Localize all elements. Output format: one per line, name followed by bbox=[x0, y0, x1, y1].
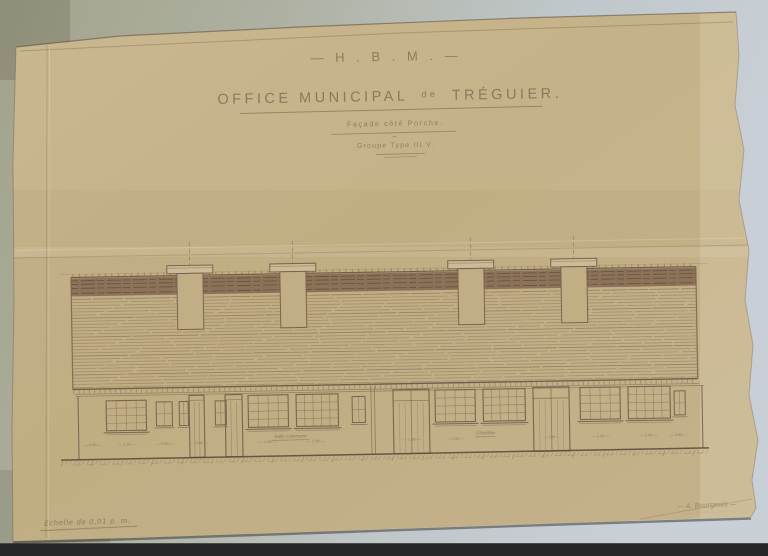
subtitle-group: Groupe Type III.V. bbox=[357, 142, 435, 150]
series-title: — H . B . M . — bbox=[310, 48, 461, 66]
chimney-cap bbox=[551, 258, 597, 267]
main-title-left: OFFICE MUNICIPAL bbox=[217, 89, 408, 108]
chimney-cap bbox=[448, 260, 494, 269]
main-title-de: de bbox=[421, 89, 438, 99]
room-label-text: Chambre bbox=[476, 430, 495, 435]
chimney-cap bbox=[167, 265, 213, 274]
chimney-shaft bbox=[280, 271, 307, 327]
subtitle-facade: Façade côté Porche. bbox=[347, 118, 444, 129]
main-title-right: TRÉGUIER. bbox=[452, 85, 563, 104]
chimney-cap bbox=[270, 263, 316, 272]
chimney-shaft bbox=[177, 273, 204, 329]
dimension-text: — 0.60 — bbox=[670, 432, 688, 437]
dimension-text: — 1.50 — bbox=[259, 439, 277, 444]
scene-svg: — H . B . M . — OFFICE MUNICIPAL de TRÉG… bbox=[0, 0, 768, 556]
dimension-text: — 1.50 — bbox=[640, 432, 658, 437]
dimension-text: — 0.45 — bbox=[84, 442, 102, 447]
chimney-shaft bbox=[561, 266, 588, 322]
dimension-text: — 1.80 — bbox=[543, 434, 561, 439]
dimension-text: — 0.80 — bbox=[156, 441, 174, 446]
small-window bbox=[177, 401, 190, 427]
dimension-text: — 1.30 — bbox=[118, 441, 136, 446]
dimension-text: — 1.50 — bbox=[592, 433, 610, 438]
dimension-text: — 0.90 — bbox=[190, 440, 208, 445]
dimension-text: — 1.50 — bbox=[447, 436, 465, 441]
small-window bbox=[672, 391, 687, 417]
chimney-shaft bbox=[458, 268, 485, 324]
dimension-text: — 1.80 — bbox=[403, 436, 421, 441]
dimension-text: — 1.50 — bbox=[307, 438, 325, 443]
small-window bbox=[213, 401, 228, 427]
room-label-text: Salle Commune bbox=[274, 433, 307, 439]
table-edge-shadow bbox=[0, 543, 768, 556]
photo-of-architectural-drawing: — H . B . M . — OFFICE MUNICIPAL de TRÉG… bbox=[0, 0, 768, 556]
